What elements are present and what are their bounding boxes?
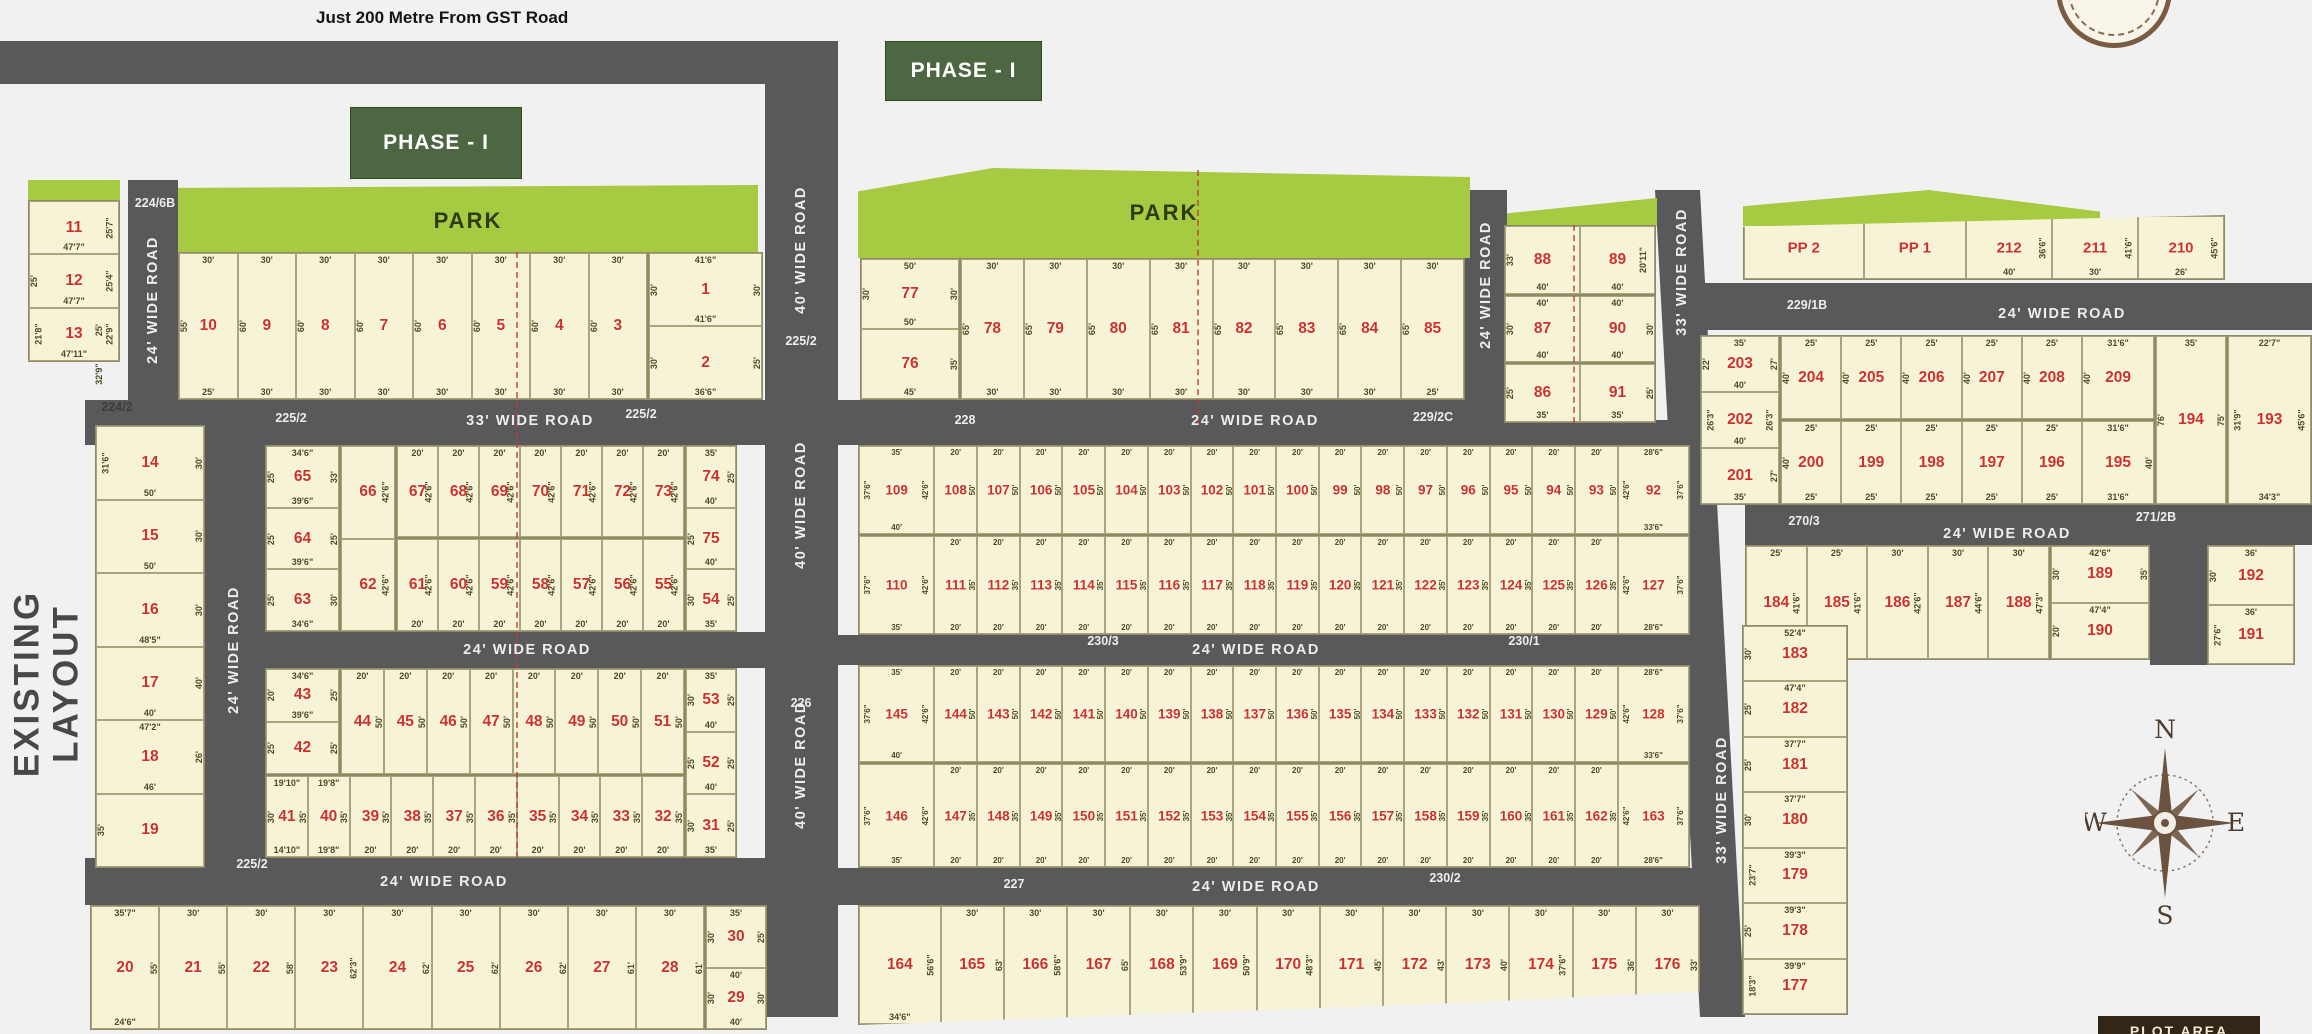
plot-dimension: 65'	[961, 323, 971, 335]
plot-198: 19825'25'	[1901, 421, 1961, 504]
plot-number: 116	[1158, 578, 1180, 593]
plot-dimension: 62'	[421, 961, 431, 973]
plot-dimension: 42'6"	[1622, 704, 1631, 723]
plot-dimension: 25'	[94, 324, 104, 336]
plot-number: 148	[987, 808, 1010, 823]
plot-dimension: 30'	[664, 908, 676, 918]
plot-number: 75	[702, 530, 719, 548]
plot-dimension: 42'6"	[1622, 575, 1631, 594]
plot-number: 183	[1782, 645, 1808, 663]
plot-60: 6020'42'6"	[438, 539, 479, 631]
plot-number: 5	[496, 317, 505, 335]
plot-111: 11120'20'35'	[934, 536, 977, 634]
plot-dimension: 28'6"	[1644, 623, 1663, 632]
plot-block-D3: 6720'42'6"6820'42'6"6920'42'6"7020'42'6"…	[396, 445, 685, 538]
plot-number: 126	[1585, 578, 1608, 593]
plot-197: 19725'25'	[1962, 421, 2022, 504]
plot-dimension: 30'	[966, 908, 978, 918]
plot-180: 18037'7"30'	[1743, 792, 1847, 847]
plot-dimension: 35'	[1096, 580, 1105, 591]
plot-dimension: 30'	[2208, 569, 2218, 581]
plot-dimension: 22'9"	[104, 324, 114, 345]
plot-dimension: 30'	[194, 604, 204, 616]
plot-dimension: 30'	[686, 820, 696, 832]
plot-dimension: 25'	[2046, 423, 2058, 433]
plot-98: 9820'50'	[1361, 446, 1404, 534]
plot-dimension: 42'6"	[546, 481, 556, 502]
plot-dimension: 20'	[1036, 448, 1047, 457]
plot-dimension: 50'	[1182, 709, 1191, 720]
plot-dimension: 35'	[1310, 580, 1319, 591]
plot-44: 4420'50'	[341, 669, 384, 774]
plot-dimension: 63'	[994, 959, 1004, 971]
plot-dimension: 25'	[202, 387, 214, 397]
plot-212: 21240'36'6"	[1966, 216, 2052, 279]
plot-97: 9720'50'	[1404, 446, 1447, 534]
plot-dimension: 47'3"	[2034, 592, 2044, 613]
road-name-label: 24' WIDE ROAD	[1478, 221, 1494, 349]
plot-68: 6820'42'6"	[438, 446, 479, 537]
plot-dimension: 62'3"	[349, 957, 359, 978]
plot-121: 12120'20'35'	[1361, 536, 1404, 634]
plot-dimension: 60'	[238, 320, 248, 332]
plot-201: 20135'27'	[1701, 448, 1779, 504]
plot-dimension: 19'8"	[318, 845, 339, 855]
plot-dimension: 35'	[891, 856, 902, 865]
plot-125: 12520'20'35'	[1532, 536, 1575, 634]
plot-number: 192	[2238, 567, 2264, 585]
plot-number: 133	[1414, 707, 1437, 722]
plot-number: 88	[1534, 251, 1551, 269]
plot-dimension: 35'	[2139, 568, 2149, 580]
plot-dimension: 47'4"	[1784, 683, 1805, 693]
plot-138: 13820'50'	[1191, 666, 1234, 762]
plot-26: 2630'62'	[500, 906, 568, 1029]
plot-block-O2: 20425'40'20525'40'20625'40'20725'40'2082…	[1780, 335, 2155, 420]
plot-block-Q: 18352'4"30'18247'4"25'18137'7"25'18037'7…	[1742, 625, 1848, 1015]
plot-dimension: 20'	[1292, 668, 1303, 677]
road-name-label: 24' WIDE ROAD	[1191, 413, 1319, 429]
plot-176: 17630'31'3"33'	[1636, 906, 1699, 1024]
plot-171: 17130'45'	[1320, 906, 1383, 1024]
plot-dimension: 30'	[986, 387, 998, 397]
plot-95: 9520'50'	[1490, 446, 1533, 534]
plot-dimension: 20'	[1548, 668, 1559, 677]
road-name-label: 40' WIDE ROAD	[793, 186, 809, 314]
plot-dimension: 20'	[1207, 448, 1218, 457]
plot-number: 113	[1030, 578, 1052, 593]
plot-36: 3620'35'	[475, 776, 517, 857]
plot-dimension: 36'6"	[695, 387, 716, 397]
plot-number: 134	[1372, 707, 1395, 722]
plot-dimension: 20'	[1335, 623, 1346, 632]
plot-128: 12828'6"33'6"42'6"37'6"	[1618, 666, 1689, 762]
plot-84: 8430'30'65'	[1338, 259, 1401, 399]
plot-dimension: 30'	[261, 387, 273, 397]
plot-dimension: 35'	[1353, 810, 1362, 821]
survey-number-label: 224/2	[101, 400, 132, 414]
plot-number: 198	[1919, 454, 1945, 472]
plot-dimension: 35'	[705, 845, 717, 855]
plot-114: 11420'20'35'	[1062, 536, 1105, 634]
plot-dimension: 50'	[1310, 709, 1319, 720]
plot-dimension: 37'6"	[1676, 704, 1685, 723]
survey-number-label: 270/3	[1788, 514, 1819, 528]
plot-number: 174	[1528, 956, 1554, 974]
plot-dimension: 50'	[1267, 709, 1276, 720]
plot-dimension: 65'	[1213, 323, 1223, 335]
plot-number: 41	[278, 808, 295, 826]
plot-dimension: 35'	[1139, 810, 1148, 821]
plot-27: 2730'61'	[568, 906, 636, 1029]
plot-number: 38	[404, 808, 421, 826]
plot-dimension: 20'	[1335, 856, 1346, 865]
plot-number: 160	[1500, 808, 1523, 823]
plot-dimension: 30'	[1049, 261, 1061, 271]
plot-dimension: 35'	[1609, 810, 1618, 821]
plot-dimension: 20'	[1506, 766, 1517, 775]
plot-dimension: 37'7"	[1784, 794, 1805, 804]
plot-179: 17939'3"23'7"	[1743, 848, 1847, 903]
plot-number: 48	[525, 713, 542, 731]
plot-dimension: 30'	[553, 255, 565, 265]
plot-number: 91	[1609, 384, 1626, 402]
plot-dimension: 20'	[1335, 448, 1346, 457]
plot-dimension: 62'	[558, 961, 568, 973]
plot-39: 3920'35'	[350, 776, 392, 857]
plot-dimension: 25'	[1986, 338, 1998, 348]
plot-number: 21	[185, 959, 202, 977]
plot-dimension: 42'6"	[380, 482, 390, 503]
plot-dimension: 35'	[1609, 580, 1618, 591]
plot-dimension: 35'	[1267, 580, 1276, 591]
road-name-label: 33' WIDE ROAD	[1674, 208, 1690, 336]
plot-block-E2: 4420'50'4520'50'4620'50'4720'50'4820'50'…	[340, 668, 685, 775]
plot-number: 99	[1333, 483, 1348, 498]
plot-number: 168	[1149, 956, 1175, 974]
plot-dimension: 20'	[1292, 623, 1303, 632]
plot-number: 141	[1073, 707, 1096, 722]
plot-4: 430'30'60'	[530, 253, 589, 399]
plot-29: 2940'40'30'30'	[706, 968, 766, 1030]
plot-dimension: 30'	[1049, 387, 1061, 397]
plot-dimension: 20'	[411, 619, 423, 629]
plot-dimension: 53'9"	[1179, 954, 1189, 975]
plot-dimension: 20'	[614, 671, 626, 681]
plot-dimension: 20'	[1036, 856, 1047, 865]
plot-dimension: 30'	[861, 288, 871, 300]
plot-number: 203	[1727, 355, 1753, 373]
plot-80: 8030'30'65'	[1087, 259, 1150, 399]
plot-dimension: 39'6"	[292, 496, 313, 506]
plot-dimension: 41'6"	[695, 314, 716, 324]
plot-number: 106	[1030, 483, 1053, 498]
plot-148: 14820'20'35'	[977, 764, 1020, 867]
survey-number-label: 226	[791, 696, 812, 710]
plot-192: 19236'30'	[2208, 546, 2294, 605]
plot-number: 86	[1534, 384, 1551, 402]
plot-number: 10	[200, 317, 217, 335]
plot-dimension: 33'	[1689, 959, 1699, 971]
plot-dimension: 30'	[1743, 814, 1753, 826]
plot-dimension: 20'	[1548, 538, 1559, 547]
plot-dimension: 30'	[649, 356, 659, 368]
plot-dimension: 20'	[1249, 448, 1260, 457]
plot-dimension: 25'	[1770, 548, 1782, 558]
survey-number-label: 230/2	[1429, 871, 1460, 885]
plot-dimension: 27'	[1769, 470, 1779, 482]
plot-dimension: 40'	[1781, 456, 1791, 468]
survey-number-label: 225/2	[275, 411, 306, 425]
plot-dimension: 25'	[1865, 338, 1877, 348]
plot-57: 5720'42'6"	[561, 539, 602, 631]
plot-number: 23	[321, 959, 338, 977]
plot-153: 15320'20'35'	[1191, 764, 1234, 867]
plot-127: 12728'6"42'6"37'6"	[1618, 536, 1689, 634]
plot-number: 49	[568, 713, 585, 731]
plot-dimension: 14'10"	[274, 845, 300, 855]
plot-dimension: 50'	[1310, 485, 1319, 496]
plot-number: 1	[701, 281, 710, 299]
plot-number: 84	[1361, 320, 1378, 338]
plot-block-E1: 4334'6"39'6"20'25'4225'25'	[265, 668, 340, 775]
plot-dimension: 20'	[1207, 668, 1218, 677]
plot-dimension: 50'	[1481, 485, 1490, 496]
plot-72: 7220'42'6"	[602, 446, 643, 537]
plot-number: 205	[1858, 369, 1884, 387]
plot-dimension: 30'	[949, 288, 959, 300]
plot-dimension: 20'	[1377, 766, 1388, 775]
plot-dimension: 30'	[612, 255, 624, 265]
plot-dimension: 50'	[1353, 485, 1362, 496]
plot-number: 22	[253, 959, 270, 977]
plot-dimension: 30'	[1175, 387, 1187, 397]
survey-dashed-line	[516, 252, 518, 858]
plot-dimension: 20'	[1164, 856, 1175, 865]
plot-dimension: 30'	[1364, 261, 1376, 271]
plot-dimension: 25'	[1505, 387, 1515, 399]
plot-dimension: 30'	[756, 992, 766, 1004]
plot-dimension: 24'6"	[114, 1017, 135, 1027]
plot-block-I: 11035'37'6"42'6"11120'20'35'11220'20'35'…	[858, 535, 1690, 635]
plot-115: 11520'20'35'	[1105, 536, 1148, 634]
plot-dimension: 25'	[686, 532, 696, 544]
plot-dimension: 20'	[1548, 448, 1559, 457]
plot-dimension: 20'	[993, 623, 1004, 632]
plot-block-C: 1450'31'6"30'1550'30'1648'5"30'1740'40'1…	[95, 425, 205, 868]
plot-number: 6	[438, 317, 447, 335]
plot-190: 19047'4"20'	[2051, 603, 2149, 660]
plot-dimension: 26'	[2175, 267, 2187, 277]
plot-block-K: 14635'37'6"42'6"14720'20'35'14820'20'35'…	[858, 763, 1690, 868]
plot-dimension: 35'	[1011, 580, 1020, 591]
plot-dimension: 42'6"	[1622, 806, 1631, 825]
plot-dimension: 50'	[1395, 709, 1404, 720]
plot-number: 29	[727, 989, 744, 1007]
plot-dimension: 65'	[1401, 323, 1411, 335]
plot-dimension: 40'	[144, 708, 156, 718]
plot-number: 76	[901, 355, 918, 373]
plot-number: 13	[65, 325, 82, 343]
plot-dimension: 25'	[726, 594, 736, 606]
plot-number: 193	[2257, 411, 2283, 429]
plot-number: 185	[1824, 594, 1850, 612]
plot-dimension: 30'	[1301, 261, 1313, 271]
plot-dimension: 25'	[726, 471, 736, 483]
plot-dimension: 40'	[2022, 371, 2032, 383]
plot-66: 6642'6"	[341, 446, 395, 539]
plot-dimension: 18'3"	[1748, 976, 1758, 997]
plot-dimension: 20'	[950, 766, 961, 775]
plot-dimension: 20'	[1377, 538, 1388, 547]
plot-dimension: 35'	[891, 448, 902, 457]
plot-number: 127	[1642, 578, 1665, 593]
plot-dimension: 30'	[1661, 908, 1673, 918]
plot-number: 211	[2083, 239, 2107, 256]
plot-dimension: 34'6"	[292, 671, 313, 681]
plot-dimension: 25'	[266, 742, 276, 754]
plot-100: 10020'50'	[1276, 446, 1319, 534]
plot-dimension: 35'	[968, 810, 977, 821]
plot-number: 123	[1457, 578, 1480, 593]
plot-dimension: 30'	[1472, 908, 1484, 918]
plot-dimension: 50'	[460, 715, 470, 727]
plot-dimension: 20'	[1506, 623, 1517, 632]
plot-dimension: 35'	[949, 358, 959, 370]
plot-dimension: 30'	[1535, 908, 1547, 918]
plot-62: 6242'6"	[341, 539, 395, 632]
plot-number: 74	[702, 468, 719, 486]
plot-dimension: 25'	[1645, 387, 1655, 399]
plot-dimension: 65'	[1024, 323, 1034, 335]
plot-43: 4334'6"39'6"20'25'	[266, 669, 339, 722]
plot-dimension: 30'	[706, 992, 716, 1004]
plot-dimension: 23'7"	[1748, 865, 1758, 886]
plot-dimension: 30'	[495, 387, 507, 397]
plot-number: 33	[613, 808, 630, 826]
plot-37: 3720'35'	[433, 776, 475, 857]
plot-55: 5520'42'6"	[643, 539, 684, 631]
plot-dimension: 50'	[1523, 709, 1532, 720]
plot-6: 630'30'60'	[413, 253, 472, 399]
compass-west-label: W	[2085, 808, 2107, 837]
plot-109: 10935'40'37'6"42'6"	[859, 446, 934, 534]
plot-dimension: 34'6"	[292, 448, 313, 458]
plot-number: 52	[702, 754, 719, 772]
plot-dimension: 42'6"	[380, 574, 390, 595]
plot-dimension: 35'	[1523, 580, 1532, 591]
plot-number: 31	[702, 817, 719, 835]
plot-dimension: 31'6"	[2107, 492, 2128, 502]
plot-dimension: 35'	[2185, 338, 2197, 348]
plot-dimension: 40'	[2003, 267, 2015, 277]
plot-number: 27	[593, 959, 610, 977]
plot-dimension: 20'	[1506, 668, 1517, 677]
survey-number-label: 229/1B	[1787, 298, 1827, 312]
plot-number: 149	[1030, 808, 1053, 823]
plot-dimension: 40'	[1902, 371, 1912, 383]
plot-113: 11320'20'35'	[1020, 536, 1063, 634]
plot-dimension: 35'	[1734, 338, 1746, 348]
plot-dimension: 30'	[1156, 908, 1168, 918]
plot-191: 19136'27'6"	[2208, 605, 2294, 664]
plot-number: 54	[702, 591, 719, 609]
plot-dimension: 40'	[1536, 298, 1548, 308]
plot-dimension: 25'	[1865, 492, 1877, 502]
plot-dimension: 42'6"	[1622, 480, 1631, 499]
plot-dimension: 37'6"	[1676, 575, 1685, 594]
plot-14: 1450'31'6"30'	[96, 426, 204, 500]
plot-dimension: 20'	[1335, 766, 1346, 775]
plot-dimension: 47'2"	[139, 722, 160, 732]
plot-block-D2: 6642'6"6242'6"	[340, 445, 396, 632]
plot-186: 18630'42'6"	[1867, 546, 1928, 659]
plot-dimension: 20'	[1591, 668, 1602, 677]
plot-block-F2: 3035'30'25'2940'40'30'30'	[705, 905, 767, 1030]
plot-area-box: PLOT AREA	[2098, 1016, 2260, 1034]
plot-16: 1648'5"30'	[96, 573, 204, 647]
plot-dimension: 42'6"	[921, 575, 930, 594]
plot-dimension: 31'6"	[2107, 338, 2128, 348]
plot-number: 180	[1782, 811, 1808, 829]
plot-block-P2: 18942'6"30'35'19047'4"20'	[2050, 545, 2150, 660]
plot-130: 13020'50'	[1532, 666, 1575, 762]
plot-dimension: 37'6"	[863, 704, 872, 723]
plot-13: 1347'11"21'8"22'9"	[29, 308, 119, 361]
plot-number: 17	[141, 674, 158, 692]
plot-number: 150	[1073, 808, 1096, 823]
plot-dimension: 40'	[705, 782, 717, 792]
plot-dimension: 25'	[1805, 492, 1817, 502]
plot-dimension: 50'	[1566, 709, 1575, 720]
plot-block-B2: 141'6"41'6"30'30'236'6"30'25'	[648, 252, 763, 400]
plot-dimension: 50'	[1609, 709, 1618, 720]
plot-dimension: 30'	[706, 931, 716, 943]
plot-dimension: 20'	[1463, 668, 1474, 677]
plot-dimension: 60'	[355, 320, 365, 332]
plot-dimension: 22'7"	[2259, 338, 2280, 348]
plot-number: 35	[529, 808, 546, 826]
plot-number: 20	[116, 959, 133, 977]
plot-dimension: 50'	[674, 715, 684, 727]
plot-18: 1847'2"46'26'	[96, 720, 204, 794]
plot-35: 3520'35'	[517, 776, 559, 857]
plot-dimension: 20'	[657, 448, 669, 458]
plot-number: 28	[661, 959, 678, 977]
plot-dimension: 37'7"	[1784, 739, 1805, 749]
plot-number: PP 1	[1899, 239, 1931, 256]
plot-dimension: 30'	[319, 387, 331, 397]
plot-146: 14635'37'6"42'6"	[859, 764, 934, 867]
plot-24: 2430'62'	[363, 906, 431, 1029]
plot-number: 131	[1500, 707, 1523, 722]
plot-dimension: 50'	[1609, 485, 1618, 496]
plot-block-D1: 6534'6"39'6"25'33'6439'6"25'25'6334'6"25…	[265, 445, 340, 632]
plot-dimension: 20'	[1164, 668, 1175, 677]
plot-85: 8530'25'65'	[1401, 259, 1464, 399]
plot-number: 136	[1286, 707, 1309, 722]
plot-dimension: 20'	[575, 448, 587, 458]
plot-number: 50	[611, 713, 628, 731]
road-name-label: 24' WIDE ROAD	[380, 874, 508, 890]
plot-47: 4720'50'	[470, 669, 513, 774]
survey-number-label: 225/2	[625, 407, 656, 421]
plot-dimension: 30'	[378, 387, 390, 397]
park-area	[1507, 198, 1657, 226]
plot-135: 13520'50'	[1319, 666, 1362, 762]
plot-dimension: 30'	[1238, 261, 1250, 271]
plot-dimension: 42'6"	[628, 481, 638, 502]
